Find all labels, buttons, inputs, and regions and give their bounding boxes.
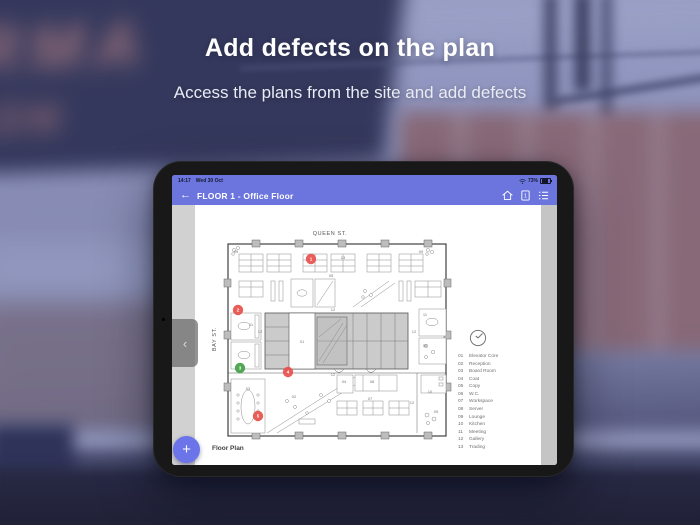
room-label: 06 xyxy=(423,343,428,348)
room-label: 01 xyxy=(300,339,305,344)
street-label-left: BAY ST. xyxy=(212,327,218,351)
legend-name: W.C. xyxy=(469,392,498,398)
nav-icons: 1 xyxy=(502,190,549,201)
battery-icon xyxy=(540,178,551,185)
legend-name: Board Room xyxy=(469,369,498,375)
legend-row: 11Meeting xyxy=(458,430,498,436)
status-bar-left: 14:17Wed 30 Oct xyxy=(178,178,228,184)
legend-row: 09Lounge xyxy=(458,415,498,421)
legend-name: Meeting xyxy=(469,430,498,436)
room-label: 13 xyxy=(341,255,346,260)
legend-name: Lounge xyxy=(469,415,498,421)
wifi-icon xyxy=(519,179,526,184)
defect-list-icon[interactable] xyxy=(538,190,549,201)
legend-row: 08Server xyxy=(458,407,498,413)
plan-core xyxy=(265,313,408,373)
nav-title: FLOOR 1 - Office Floor xyxy=(197,191,294,201)
defect-marker-2[interactable]: 2 xyxy=(233,305,243,315)
stage: RMA ON Add defects on the plan Access th… xyxy=(0,0,700,525)
legend-row: 01Elevator Core xyxy=(458,354,498,360)
room-label: 05 xyxy=(329,273,334,278)
legend-number: 06 xyxy=(458,392,469,398)
drawer-handle[interactable]: ‹ xyxy=(172,319,198,367)
legend-name: Reception xyxy=(469,362,498,368)
defect-marker-4[interactable]: 4 xyxy=(283,367,293,377)
hero-section: Add defects on the plan Access the plans… xyxy=(0,0,700,103)
legend-number: 01 xyxy=(458,354,469,360)
room-label: 09 xyxy=(434,409,439,414)
legend-row: 02Reception xyxy=(458,362,498,368)
legend-number: 09 xyxy=(458,415,469,421)
legend-row: 10Kitchen xyxy=(458,422,498,428)
legend-row: 06W.C. xyxy=(458,392,498,398)
legend-row: 07Workspace xyxy=(458,399,498,405)
plan-viewer: QUEEN ST. BAY ST. xyxy=(172,205,557,465)
legend-row: 03Board Room xyxy=(458,369,498,375)
room-label: 12 xyxy=(410,400,415,405)
legend-number: 12 xyxy=(458,437,469,443)
legend-name: Kitchen xyxy=(469,422,498,428)
legend-number: 03 xyxy=(458,369,469,375)
legend-number: 07 xyxy=(458,399,469,405)
room-label: 12 xyxy=(258,329,263,334)
room-label: 04 xyxy=(342,379,347,384)
defect-marker-1[interactable]: 1 xyxy=(306,254,316,264)
room-label: 10 xyxy=(428,389,433,394)
room-label: 08 xyxy=(370,379,375,384)
street-label-top: QUEEN ST. xyxy=(313,231,347,237)
room-label: 12 xyxy=(412,329,417,334)
legend-row: 04Coat xyxy=(458,377,498,383)
legend-row: 13Trading xyxy=(458,445,498,451)
plan-page-badge: 1 xyxy=(524,194,527,200)
legend-name: Workspace xyxy=(469,399,498,405)
status-bar-right: 73% xyxy=(519,178,551,185)
legend-number: 05 xyxy=(458,384,469,390)
app-nav-bar: ← FLOOR 1 - Office Floor 1 xyxy=(172,186,557,205)
defect-marker-5[interactable]: 5 xyxy=(253,411,263,421)
page-title: Add defects on the plan xyxy=(0,34,700,63)
compass-icon xyxy=(469,329,487,347)
plan-page-icon[interactable]: 1 xyxy=(520,190,531,201)
legend-name: Elevator Core xyxy=(469,354,498,360)
chevron-left-icon: ‹ xyxy=(183,337,187,350)
page-subtitle: Access the plans from the site and add d… xyxy=(0,83,700,103)
legend-name: Server xyxy=(469,407,498,413)
legend-name: Copy xyxy=(469,384,498,390)
tablet-device: 14:17Wed 30 Oct 73% ← FLOOR 1 - Office F… xyxy=(153,161,574,477)
legend-row: 12Gallery xyxy=(458,437,498,443)
legend-number: 08 xyxy=(458,407,469,413)
room-label: 07 xyxy=(368,396,373,401)
room-label: 09 xyxy=(419,249,424,254)
room-label: 09 xyxy=(234,249,239,254)
legend-number: 11 xyxy=(458,430,469,436)
viewer-right-gutter xyxy=(541,205,557,465)
home-icon[interactable] xyxy=(502,190,513,201)
legend-name: Gallery xyxy=(469,437,498,443)
room-label: 02 xyxy=(292,394,297,399)
legend-number: 10 xyxy=(458,422,469,428)
status-date: Wed 30 Oct xyxy=(196,178,223,184)
floor-plan-drawing[interactable]: QUEEN ST. BAY ST. xyxy=(203,225,452,444)
status-bar: 14:17Wed 30 Oct 73% xyxy=(172,175,557,186)
status-time: 14:17 xyxy=(178,178,191,184)
legend-number: 02 xyxy=(458,362,469,368)
tablet-screen: 14:17Wed 30 Oct 73% ← FLOOR 1 - Office F… xyxy=(172,175,557,465)
legend-row: 05Copy xyxy=(458,384,498,390)
room-label: 12 xyxy=(331,372,336,377)
battery-percent: 73% xyxy=(528,178,538,184)
legend-number: 13 xyxy=(458,445,469,451)
add-defect-fab[interactable]: + xyxy=(173,436,200,463)
legend-name: Trading xyxy=(469,445,498,451)
back-button[interactable]: ← xyxy=(180,190,191,201)
defect-marker-3[interactable]: 3 xyxy=(235,363,245,373)
room-label: 12 xyxy=(331,307,336,312)
legend-list: 01Elevator Core02Reception03Board Room04… xyxy=(458,354,498,453)
room-label: 03 xyxy=(246,386,251,391)
plan-caption: Floor Plan xyxy=(212,445,244,452)
legend-number: 04 xyxy=(458,377,469,383)
tablet-camera xyxy=(162,318,165,321)
legend-name: Coat xyxy=(469,377,498,383)
